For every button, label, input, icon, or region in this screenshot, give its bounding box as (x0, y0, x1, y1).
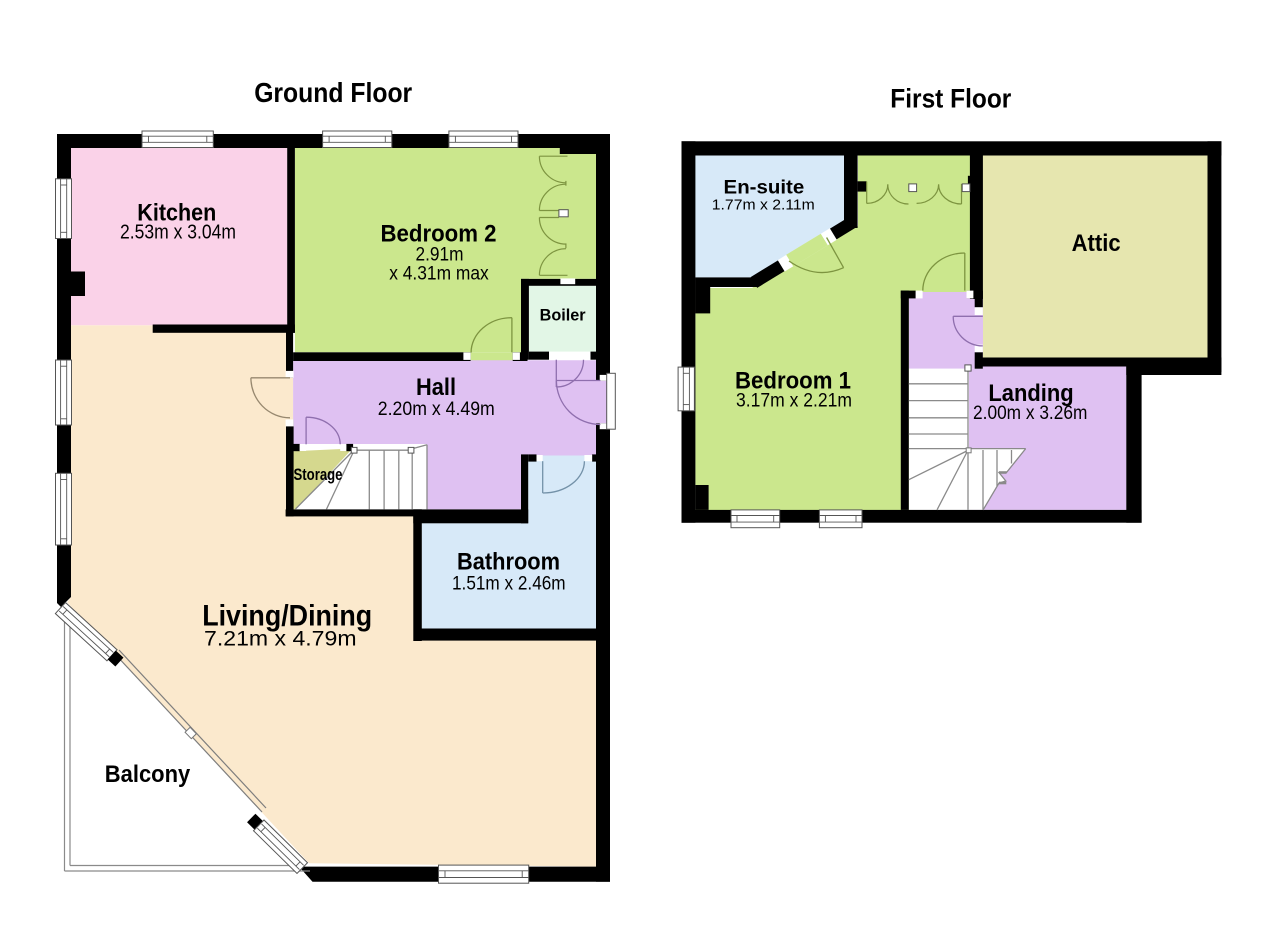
svg-text:2.00m x 3.26m: 2.00m x 3.26m (973, 403, 1087, 424)
svg-text:Balcony: Balcony (105, 761, 191, 788)
svg-text:Bathroom: Bathroom (457, 549, 560, 576)
svg-text:x 4.31m max: x 4.31m max (389, 264, 489, 285)
svg-text:Attic: Attic (1072, 230, 1121, 257)
svg-text:2.91m: 2.91m (416, 245, 464, 266)
svg-text:2.20m x 4.49m: 2.20m x 4.49m (378, 399, 495, 420)
svg-text:3.17m x 2.21m: 3.17m x 2.21m (736, 391, 852, 412)
svg-text:Storage: Storage (294, 466, 343, 484)
svg-text:Hall: Hall (416, 374, 456, 401)
svg-text:First Floor: First Floor (890, 84, 1011, 114)
svg-text:2.53m x 3.04m: 2.53m x 3.04m (120, 222, 236, 244)
svg-text:Ground Floor: Ground Floor (254, 77, 412, 108)
svg-text:7.21m x 4.79m: 7.21m x 4.79m (204, 626, 357, 650)
svg-text:1.51m x 2.46m: 1.51m x 2.46m (452, 574, 566, 595)
svg-text:1.77m x 2.11m: 1.77m x 2.11m (712, 196, 815, 213)
svg-text:Bedroom 2: Bedroom 2 (381, 220, 497, 247)
svg-text:Boiler: Boiler (540, 307, 587, 325)
